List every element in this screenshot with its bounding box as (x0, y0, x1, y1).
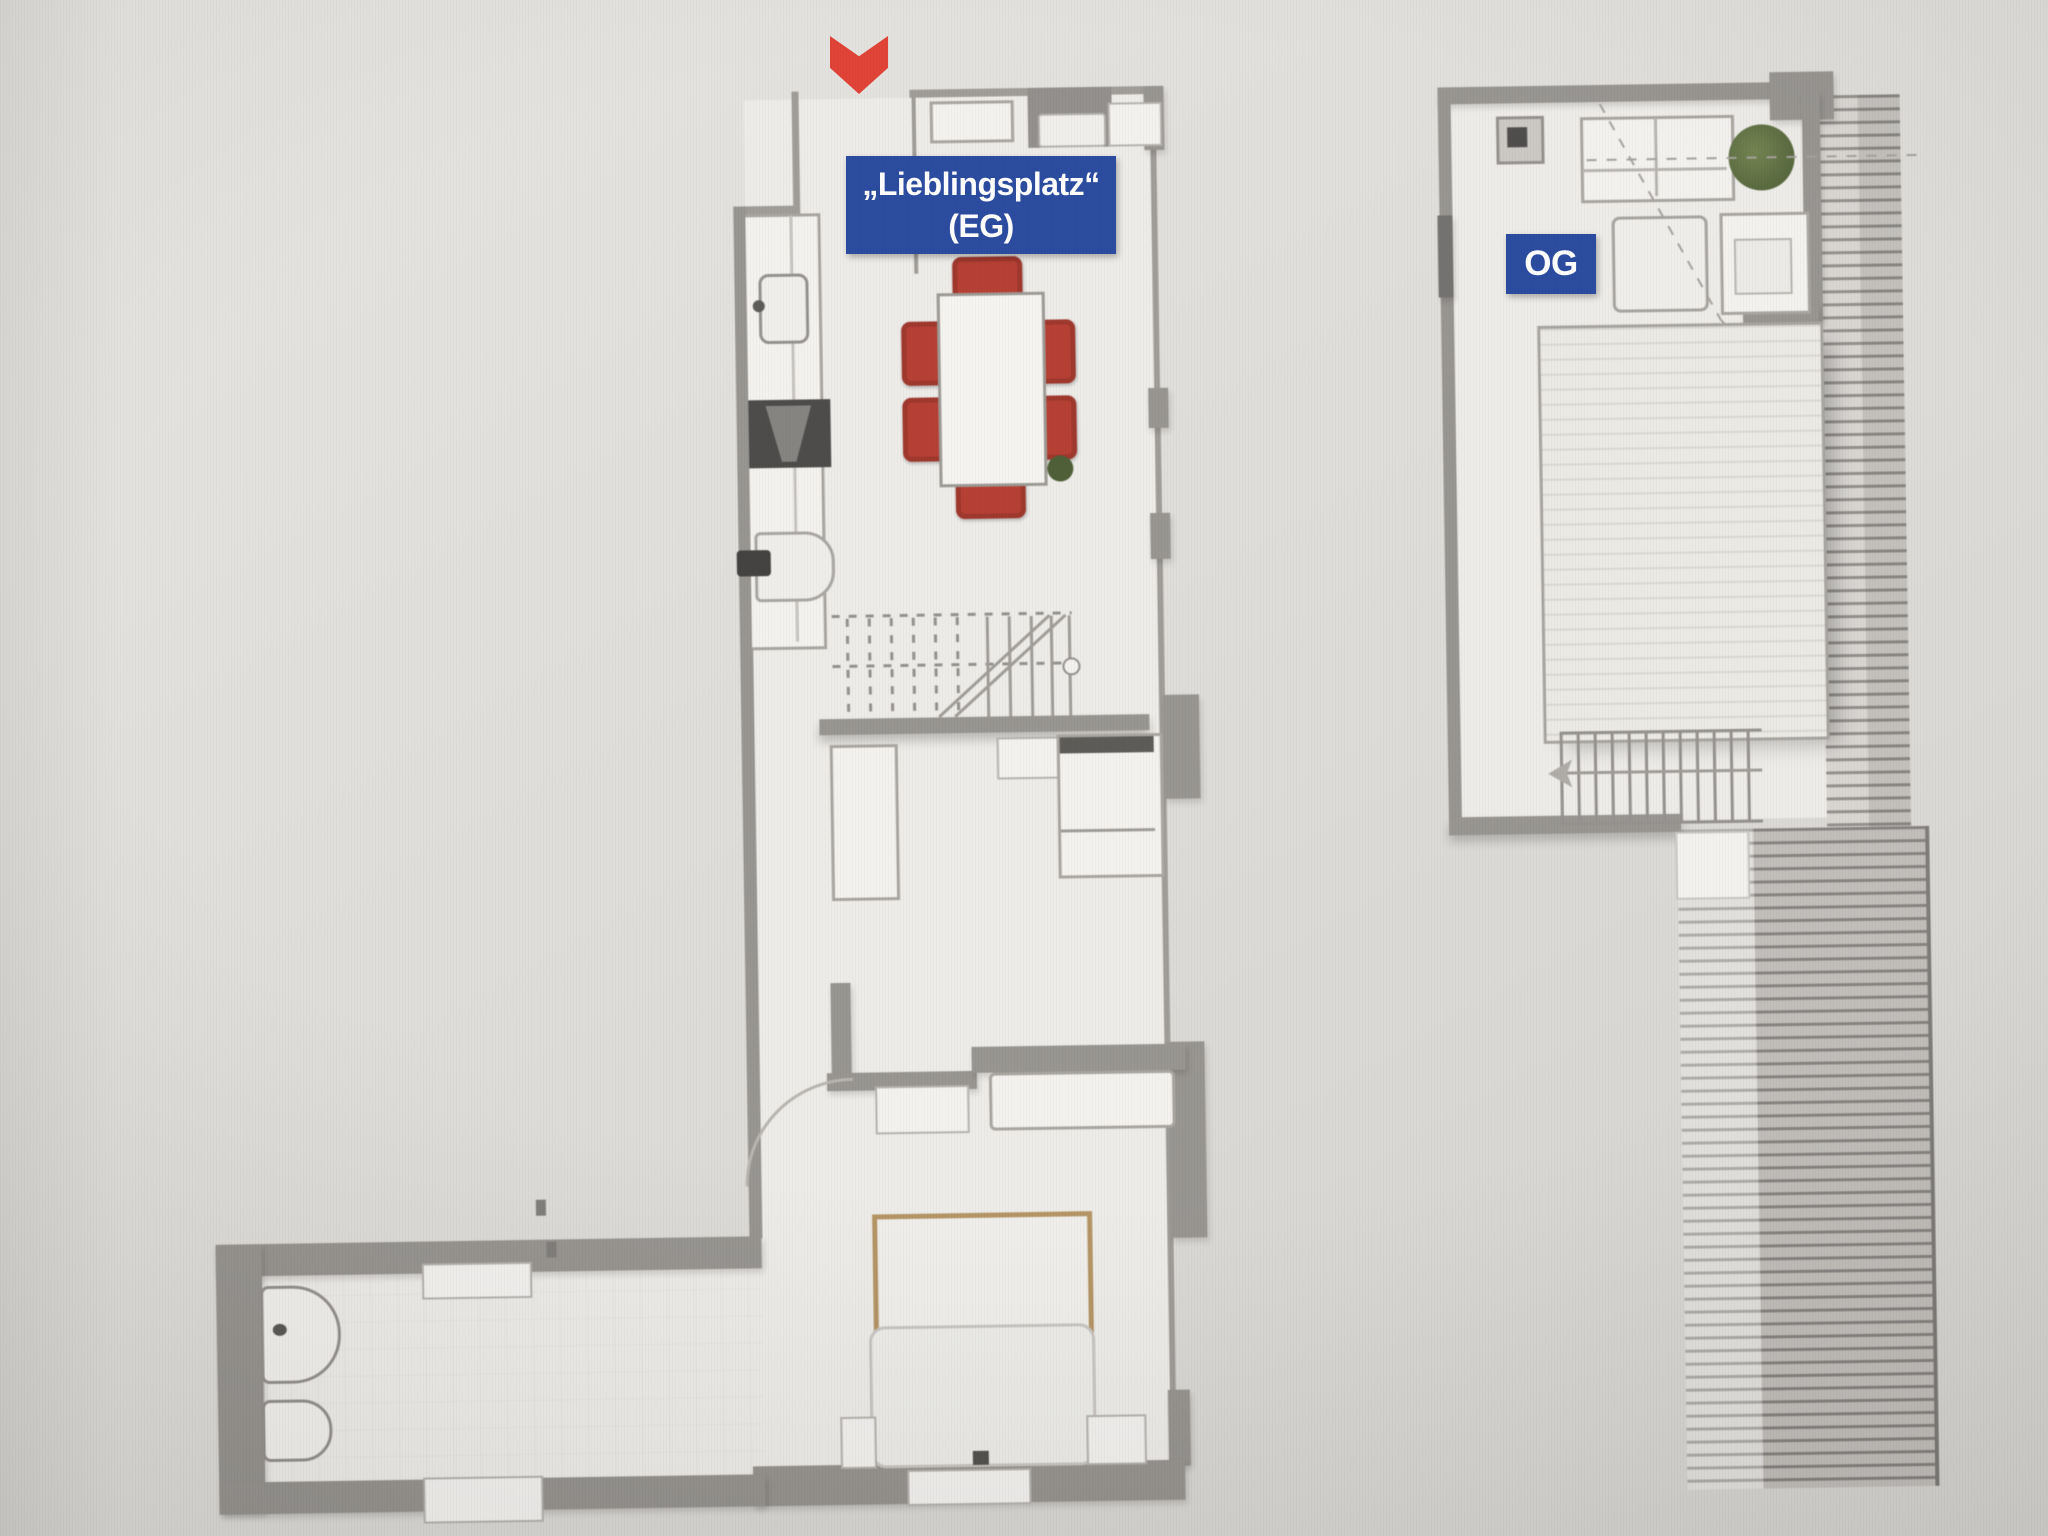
eg-right-wall-pillar-3 (1150, 513, 1171, 559)
og-plan (0, 0, 2048, 16)
armchair-cushion (1734, 238, 1793, 295)
interior-wall-h2 (971, 1044, 1185, 1073)
eg-right-wall-pillar-5 (1168, 1041, 1207, 1238)
nightstand-left (840, 1416, 877, 1469)
terrace-deck-highlight (1677, 829, 1763, 1490)
double-bed-mattress (869, 1323, 1097, 1469)
toilet (262, 1399, 333, 1462)
gallery-void (1537, 321, 1830, 743)
eg-label: „Lieblingsplatz“ (EG) (846, 156, 1116, 254)
single-bed-headboard (1060, 736, 1154, 753)
og-left-wall-dark-segment (1437, 215, 1453, 297)
og-staircase (1560, 729, 1763, 826)
eg-right-wall-pillar-4 (1163, 694, 1201, 799)
window-sill-top-right (1108, 102, 1163, 147)
interior-door-leaf (875, 1085, 970, 1134)
dishwasher-handle (737, 550, 771, 577)
closet (830, 744, 900, 901)
eg-label-line1: „Lieblingsplatz“ (862, 163, 1099, 205)
shelf-box (997, 737, 1060, 780)
eg-right-wall-pillar-2 (1148, 388, 1169, 428)
eg-bedroom-window (907, 1468, 1032, 1506)
bath-window-top (422, 1262, 533, 1300)
og-stairs-landing (1675, 831, 1750, 900)
coffee-table (1611, 215, 1708, 312)
bath-left-wall (215, 1244, 265, 1513)
dresser (989, 1070, 1176, 1131)
eg-right-wall-pillar-6 (1168, 1390, 1191, 1466)
bath-window-bottom (423, 1476, 544, 1524)
nightstand-right (1086, 1414, 1147, 1465)
eg-label-line2: (EG) (948, 205, 1014, 247)
terrace-deck-shade (1753, 826, 1939, 1489)
single-bed (1057, 733, 1165, 879)
tall-cabinet-inner (1038, 113, 1107, 148)
bath-door-mark-2 (546, 1241, 556, 1257)
wood-stove-core (1507, 127, 1527, 147)
interior-wall-v1 (830, 983, 852, 1083)
og-label: OG (1506, 234, 1596, 294)
floor-plan-photo: „Lieblingsplatz“ (EG) OG (0, 0, 2048, 1536)
kitchen-sink (758, 273, 809, 344)
bath-door-mark-1 (536, 1200, 546, 1216)
double-bed-leg (973, 1451, 989, 1465)
eg-plan (0, 0, 2048, 16)
dining-table (937, 292, 1048, 488)
eg-bath-wing-floor (262, 1266, 765, 1486)
sideboard (930, 100, 1015, 143)
og-label-text: OG (1524, 244, 1577, 284)
